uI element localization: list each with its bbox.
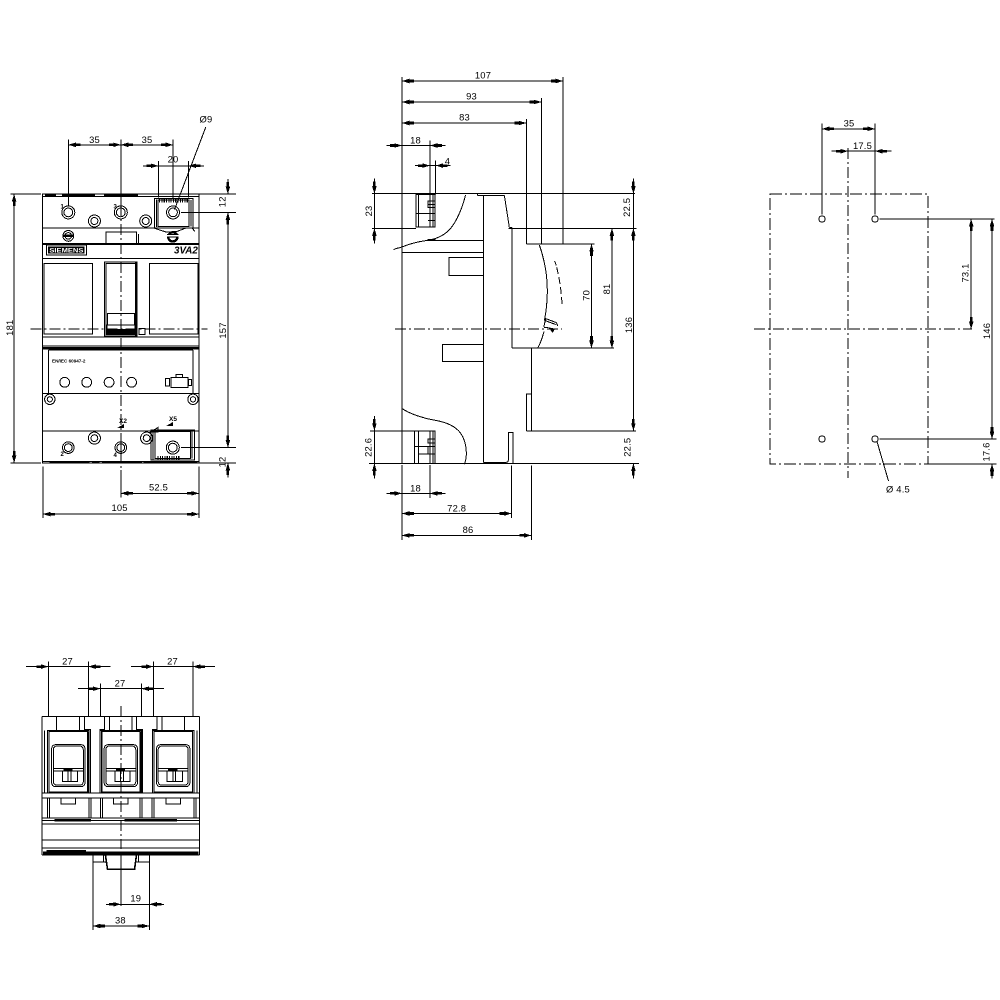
svg-text:52.5: 52.5 — [149, 481, 168, 492]
svg-text:17.5: 17.5 — [853, 140, 872, 151]
svg-text:27: 27 — [167, 655, 178, 666]
svg-text:70: 70 — [580, 290, 591, 301]
svg-text:18: 18 — [410, 135, 421, 146]
svg-text:22.5: 22.5 — [621, 198, 632, 217]
svg-text:22.6: 22.6 — [363, 438, 374, 457]
svg-text:86: 86 — [463, 524, 474, 535]
svg-text:22.5: 22.5 — [621, 438, 632, 457]
svg-text:105: 105 — [111, 502, 127, 513]
svg-text:18: 18 — [410, 482, 421, 493]
svg-text:73.1: 73.1 — [960, 263, 971, 282]
svg-text:35: 35 — [844, 118, 855, 129]
svg-text:20: 20 — [168, 153, 179, 164]
svg-text:35: 35 — [89, 134, 100, 145]
svg-text:19: 19 — [130, 893, 141, 904]
svg-text:12: 12 — [217, 196, 228, 207]
svg-text:93: 93 — [466, 91, 477, 102]
svg-text:27: 27 — [62, 655, 73, 666]
svg-text:X5: X5 — [169, 416, 177, 423]
svg-text:146: 146 — [981, 323, 992, 339]
svg-text:83: 83 — [459, 112, 470, 123]
svg-text:SIEMENS: SIEMENS — [49, 247, 84, 254]
svg-text:3VA2: 3VA2 — [174, 246, 198, 257]
svg-text:X2: X2 — [119, 418, 127, 425]
svg-text:81: 81 — [601, 284, 612, 295]
svg-text:Ø 4.5: Ø 4.5 — [886, 484, 910, 495]
svg-text:107: 107 — [475, 70, 491, 81]
svg-text:38: 38 — [115, 915, 126, 926]
svg-text:EN/IEC 60947-2: EN/IEC 60947-2 — [52, 359, 86, 364]
svg-text:136: 136 — [623, 317, 634, 333]
svg-text:23: 23 — [363, 206, 374, 217]
svg-text:Ø9: Ø9 — [200, 114, 213, 125]
svg-text:27: 27 — [115, 678, 126, 689]
svg-text:12: 12 — [217, 457, 228, 468]
svg-text:72.8: 72.8 — [447, 502, 466, 513]
svg-text:4: 4 — [445, 155, 450, 166]
svg-text:157: 157 — [217, 322, 228, 338]
svg-text:181: 181 — [4, 320, 15, 336]
svg-text:35: 35 — [142, 134, 153, 145]
svg-text:17.6: 17.6 — [980, 442, 991, 461]
